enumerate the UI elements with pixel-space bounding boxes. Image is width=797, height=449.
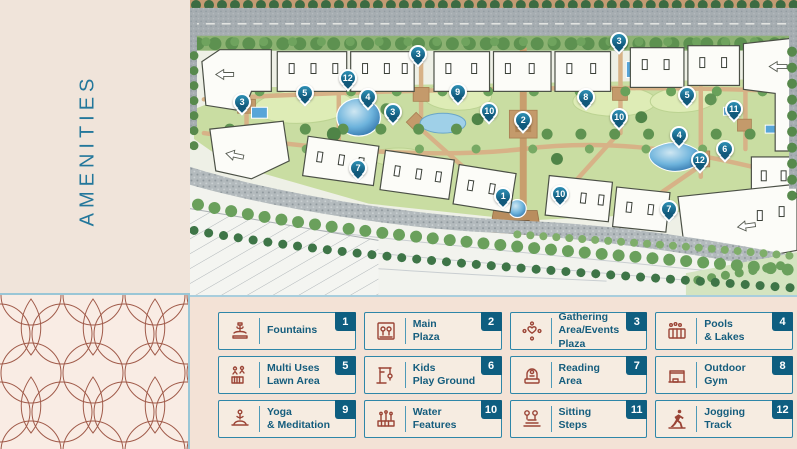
amenities-legend: Fountains 1 Main Plaza 2 Gathering Area/… — [190, 297, 797, 449]
legend-item-label: Kids Play Ground — [413, 362, 475, 388]
yoga-icon — [225, 407, 255, 431]
legend-item-number: 2 — [481, 312, 502, 331]
legend-item-label: Fountains — [267, 324, 317, 337]
site-plan-map: 351243391028310511461211077 — [190, 0, 797, 297]
map-pin-3: 3 — [233, 93, 251, 111]
outdoor-gym-icon — [662, 363, 692, 387]
map-markers: 351243391028310511461211077 — [190, 0, 797, 295]
map-pin-7: 7 — [660, 200, 678, 218]
legend-item-number: 10 — [481, 400, 502, 419]
reading-area-icon — [517, 363, 547, 387]
legend-item-reading-area: Reading Area 7 — [510, 356, 648, 394]
legend-item-yoga: Yoga & Meditation 9 — [218, 400, 356, 438]
arabesque-pattern-icon — [0, 295, 188, 449]
legend-item-label: Water Features — [413, 406, 457, 432]
map-pin-6: 6 — [716, 140, 734, 158]
legend-item-pools-lakes: Pools & Lakes 4 — [655, 312, 793, 350]
legend-item-label: Outdoor Gym — [704, 362, 745, 388]
map-pin-4: 4 — [359, 88, 377, 106]
legend-item-label: Pools & Lakes — [704, 318, 744, 344]
jogging-track-icon — [662, 407, 692, 431]
legend-item-kids-playground: Kids Play Ground 6 — [364, 356, 502, 394]
map-pin-9: 9 — [449, 83, 467, 101]
legend-item-number: 11 — [626, 400, 647, 419]
legend-item-lawn-area: Multi Uses Lawn Area 5 — [218, 356, 356, 394]
fountain-icon — [225, 319, 255, 343]
map-pin-3: 3 — [610, 32, 628, 50]
sidebar: AMENITIES — [0, 0, 190, 293]
legend-item-number: 5 — [335, 356, 356, 375]
amenities-page: AMENITIES — [0, 0, 797, 449]
map-pin-7: 7 — [349, 159, 367, 177]
gathering-icon — [517, 319, 547, 343]
map-pin-10: 10 — [610, 108, 628, 126]
legend-item-outdoor-gym: Outdoor Gym 8 — [655, 356, 793, 394]
legend-item-label: Multi Uses Lawn Area — [267, 362, 320, 388]
legend-item-number: 7 — [626, 356, 647, 375]
legend-item-number: 3 — [626, 312, 647, 331]
map-pin-11: 11 — [725, 100, 743, 118]
legend-item-gathering: Gathering Area/Events Plaza 3 — [510, 312, 648, 350]
legend-item-number: 6 — [481, 356, 502, 375]
sitting-steps-icon — [517, 407, 547, 431]
main-plaza-icon — [371, 319, 401, 343]
decorative-pattern-panel — [0, 293, 190, 449]
legend-item-number: 1 — [335, 312, 356, 331]
map-pin-10: 10 — [480, 102, 498, 120]
kids-playground-icon — [371, 363, 401, 387]
legend-item-label: Yoga & Meditation — [267, 406, 330, 432]
map-pin-12: 12 — [691, 151, 709, 169]
water-features-icon — [371, 407, 401, 431]
map-pin-3: 3 — [409, 45, 427, 63]
map-pin-4: 4 — [670, 126, 688, 144]
legend-item-label: Jogging Track — [704, 406, 745, 432]
map-pin-5: 5 — [296, 84, 314, 102]
map-pin-2: 2 — [514, 111, 532, 129]
map-pin-12: 12 — [339, 69, 357, 87]
legend-item-sitting-steps: Sitting Steps 11 — [510, 400, 648, 438]
map-pin-1: 1 — [494, 187, 512, 205]
legend-item-fountains: Fountains 1 — [218, 312, 356, 350]
pools-lakes-icon — [662, 319, 692, 343]
legend-item-number: 4 — [772, 312, 793, 331]
legend-item-number: 8 — [772, 356, 793, 375]
legend-item-water-features: Water Features 10 — [364, 400, 502, 438]
legend-item-label: Main Plaza — [413, 318, 440, 344]
map-pin-3: 3 — [384, 103, 402, 121]
legend-item-label: Reading Area — [559, 362, 600, 388]
map-pin-10: 10 — [551, 185, 569, 203]
map-pin-5: 5 — [678, 86, 696, 104]
legend-item-number: 12 — [772, 400, 793, 419]
legend-item-number: 9 — [335, 400, 356, 419]
lawn-area-icon — [225, 363, 255, 387]
legend-item-label: Sitting Steps — [559, 406, 592, 432]
map-pin-8: 8 — [577, 88, 595, 106]
page-title: AMENITIES — [77, 74, 100, 227]
legend-item-jogging-track: Jogging Track 12 — [655, 400, 793, 438]
legend-item-main-plaza: Main Plaza 2 — [364, 312, 502, 350]
